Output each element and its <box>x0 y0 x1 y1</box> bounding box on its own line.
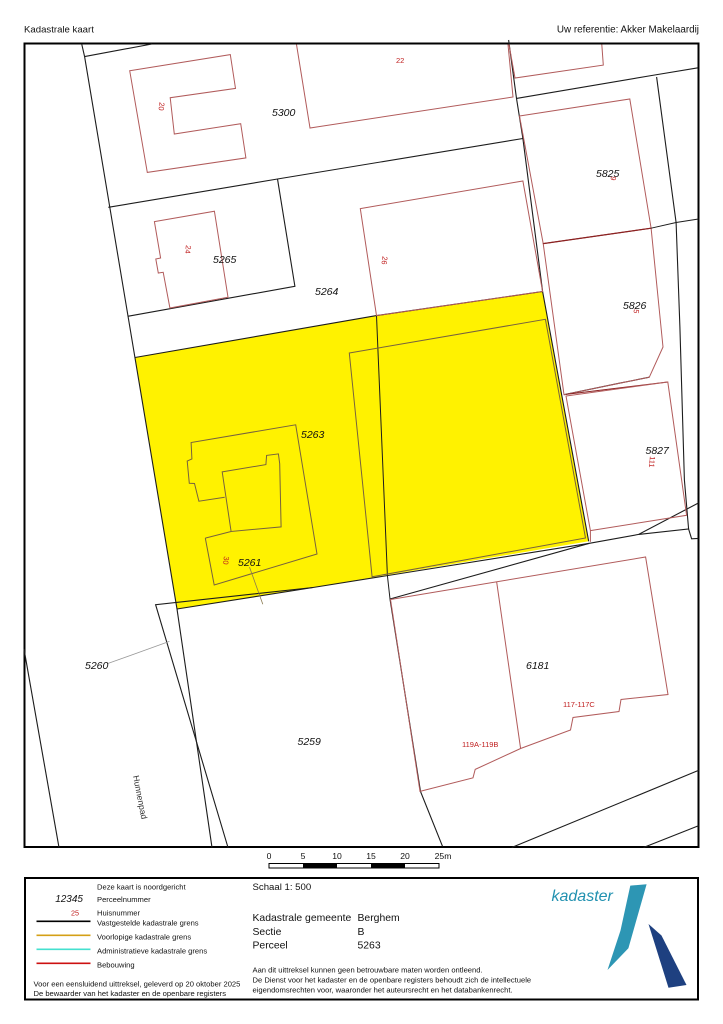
svg-text:6181: 6181 <box>526 660 549 672</box>
svg-text:5: 5 <box>632 309 641 314</box>
svg-text:Kadastrale kaart: Kadastrale kaart <box>24 25 94 36</box>
svg-text:Perceel: Perceel <box>253 941 288 952</box>
svg-text:Voor een eensluidend uittrekse: Voor een eensluidend uittreksel, gelever… <box>34 980 241 989</box>
svg-text:Berghem: Berghem <box>358 913 400 924</box>
svg-text:117-117C: 117-117C <box>563 700 595 709</box>
svg-text:Kadastrale gemeente: Kadastrale gemeente <box>253 913 352 924</box>
svg-text:22: 22 <box>396 56 404 65</box>
svg-text:Perceelnummer: Perceelnummer <box>97 895 151 904</box>
svg-text:119A-119B: 119A-119B <box>462 740 498 749</box>
svg-text:Bebouwing: Bebouwing <box>97 961 135 970</box>
svg-text:Huisnummer: Huisnummer <box>97 908 141 917</box>
svg-text:B: B <box>358 927 365 938</box>
svg-text:5263: 5263 <box>358 941 381 952</box>
svg-text:5261: 5261 <box>238 557 261 569</box>
svg-text:Uw referentie: Akker Makelaard: Uw referentie: Akker Makelaardij <box>557 25 699 36</box>
svg-text:5264: 5264 <box>315 286 339 298</box>
svg-text:eigendomsrechten voor, waarond: eigendomsrechten voor, waaronder het aut… <box>253 986 513 995</box>
svg-text:Schaal 1: 500: Schaal 1: 500 <box>253 882 312 893</box>
svg-text:20: 20 <box>156 102 166 111</box>
svg-text:Sectie: Sectie <box>253 927 282 938</box>
svg-text:Administratieve kadastrale gre: Administratieve kadastrale grens <box>97 947 207 956</box>
svg-text:5259: 5259 <box>298 736 322 748</box>
svg-text:5265: 5265 <box>213 254 237 266</box>
svg-text:5300: 5300 <box>272 107 296 119</box>
svg-text:15: 15 <box>366 851 376 861</box>
svg-text:0: 0 <box>267 851 272 861</box>
svg-text:5260: 5260 <box>85 660 109 672</box>
svg-text:De Dienst voor het kadaster en: De Dienst voor het kadaster en de openba… <box>253 976 532 985</box>
svg-text:20: 20 <box>400 851 410 861</box>
svg-text:De bewaarder van het kadaster: De bewaarder van het kadaster en de open… <box>34 989 227 998</box>
svg-text:Voorlopige kadastrale grens: Voorlopige kadastrale grens <box>97 933 191 942</box>
svg-text:9: 9 <box>609 176 618 181</box>
svg-text:kadaster: kadaster <box>552 888 614 905</box>
svg-text:Aan dit uittreksel kunnen geen: Aan dit uittreksel kunnen geen betrouwba… <box>253 966 483 975</box>
svg-text:25m: 25m <box>435 851 452 861</box>
svg-text:24: 24 <box>183 245 193 254</box>
svg-text:10: 10 <box>332 851 342 861</box>
svg-text:Hunnenpad: Hunnenpad <box>131 774 149 820</box>
svg-text:26: 26 <box>379 256 389 265</box>
svg-text:25: 25 <box>71 908 79 917</box>
svg-text:12345: 12345 <box>55 894 83 905</box>
svg-text:5: 5 <box>301 851 306 861</box>
svg-text:Deze kaart is noordgericht: Deze kaart is noordgericht <box>97 883 187 892</box>
svg-text:111: 111 <box>647 456 657 468</box>
svg-text:5263: 5263 <box>301 429 325 441</box>
svg-text:30: 30 <box>221 556 231 565</box>
svg-text:Vastgestelde kadastrale grens: Vastgestelde kadastrale grens <box>97 919 199 928</box>
